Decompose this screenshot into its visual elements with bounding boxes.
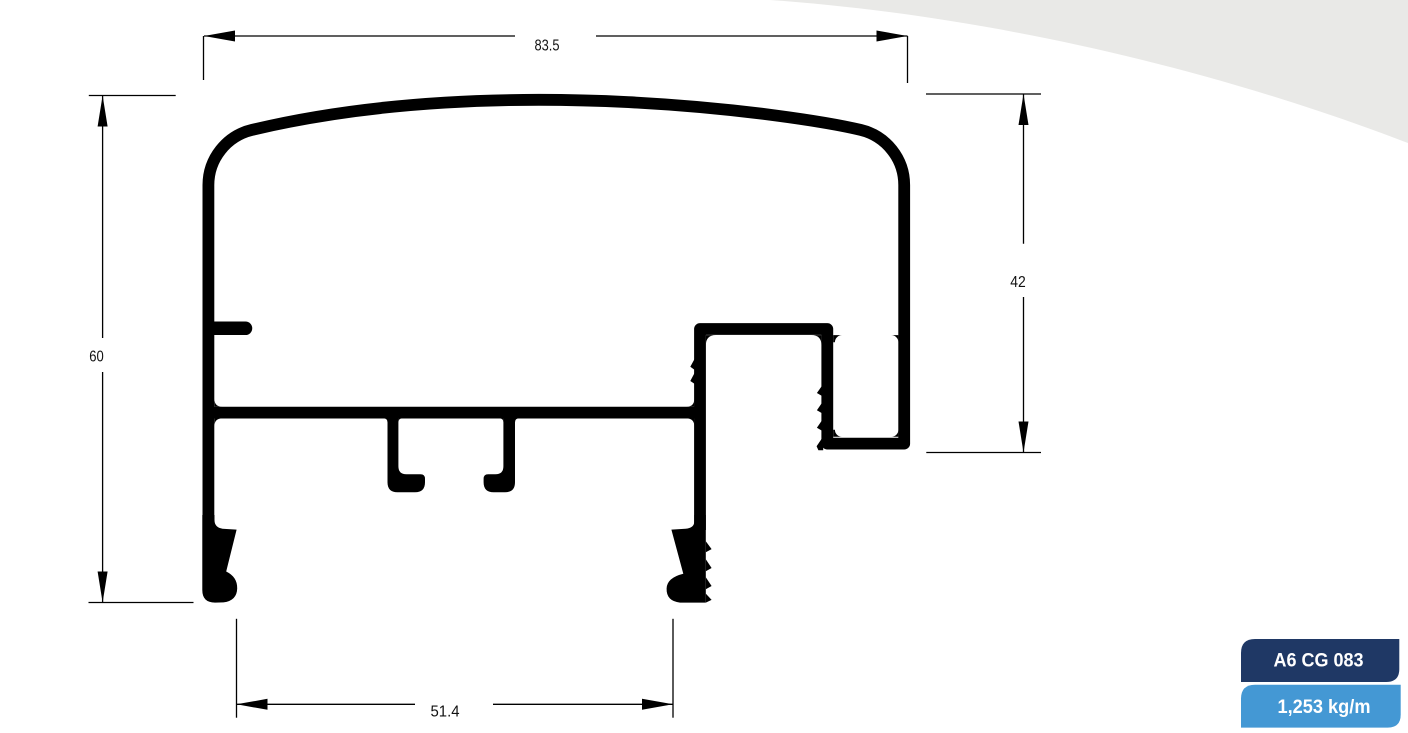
- svg-text:60: 60: [89, 349, 104, 366]
- svg-text:83.5: 83.5: [535, 38, 560, 55]
- svg-text:1,253 kg/m: 1,253 kg/m: [1278, 697, 1371, 718]
- svg-text:A6 CG 083: A6 CG 083: [1274, 651, 1364, 672]
- svg-text:51.4: 51.4: [431, 704, 460, 721]
- svg-text:42: 42: [1010, 274, 1026, 291]
